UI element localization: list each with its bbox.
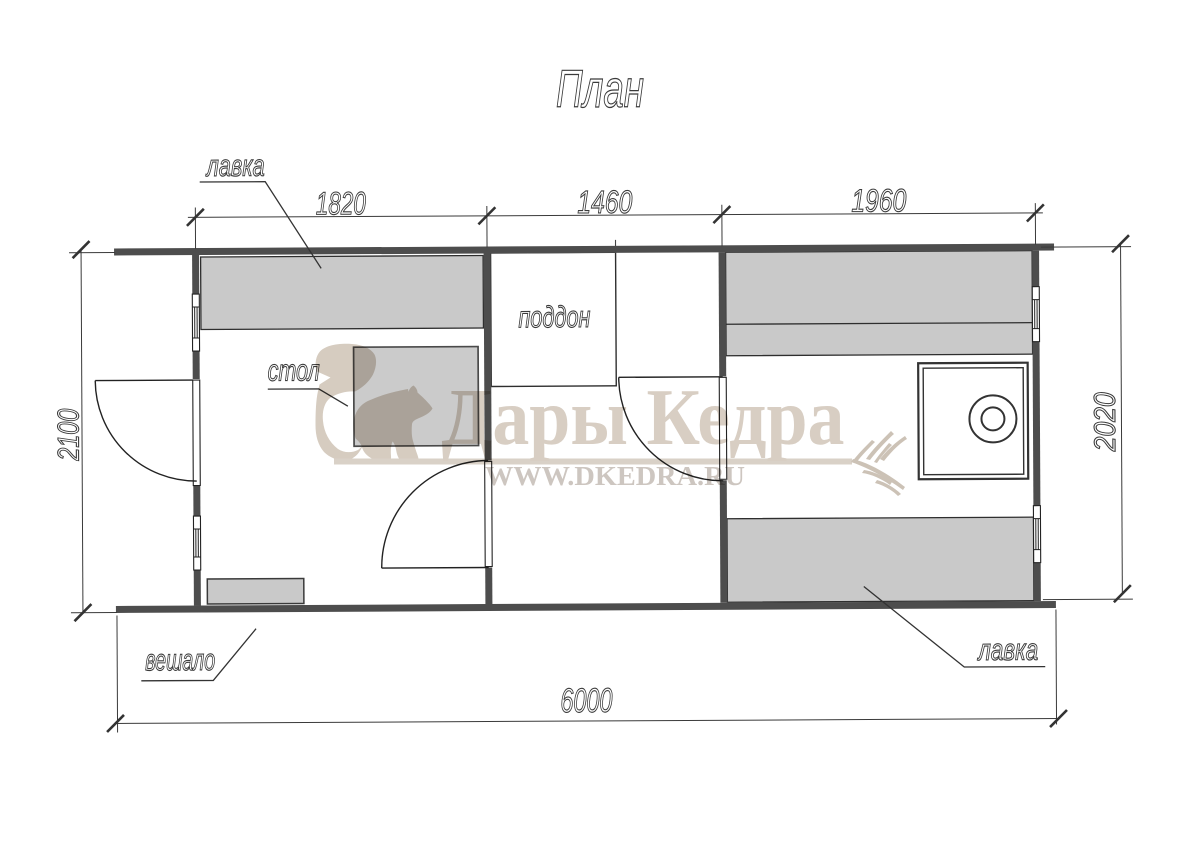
svg-text:1460: 1460 <box>577 184 632 220</box>
svg-text:лавка: лавка <box>205 150 265 183</box>
svg-text:вешало: вешало <box>145 644 215 677</box>
svg-text:6000: 6000 <box>560 682 612 720</box>
svg-text:поддон: поддон <box>518 301 590 334</box>
svg-text:1960: 1960 <box>851 182 906 218</box>
svg-text:2020: 2020 <box>1089 392 1122 452</box>
svg-text:стол: стол <box>268 354 320 387</box>
svg-text:WWW.DKEDRA.RU: WWW.DKEDRA.RU <box>485 461 745 491</box>
svg-text:План: План <box>556 60 644 119</box>
svg-text:1820: 1820 <box>316 185 366 221</box>
svg-text:Дары Кедра: Дары Кедра <box>442 374 845 462</box>
svg-text:лавка: лавка <box>977 634 1039 667</box>
svg-text:2100: 2100 <box>52 408 85 461</box>
